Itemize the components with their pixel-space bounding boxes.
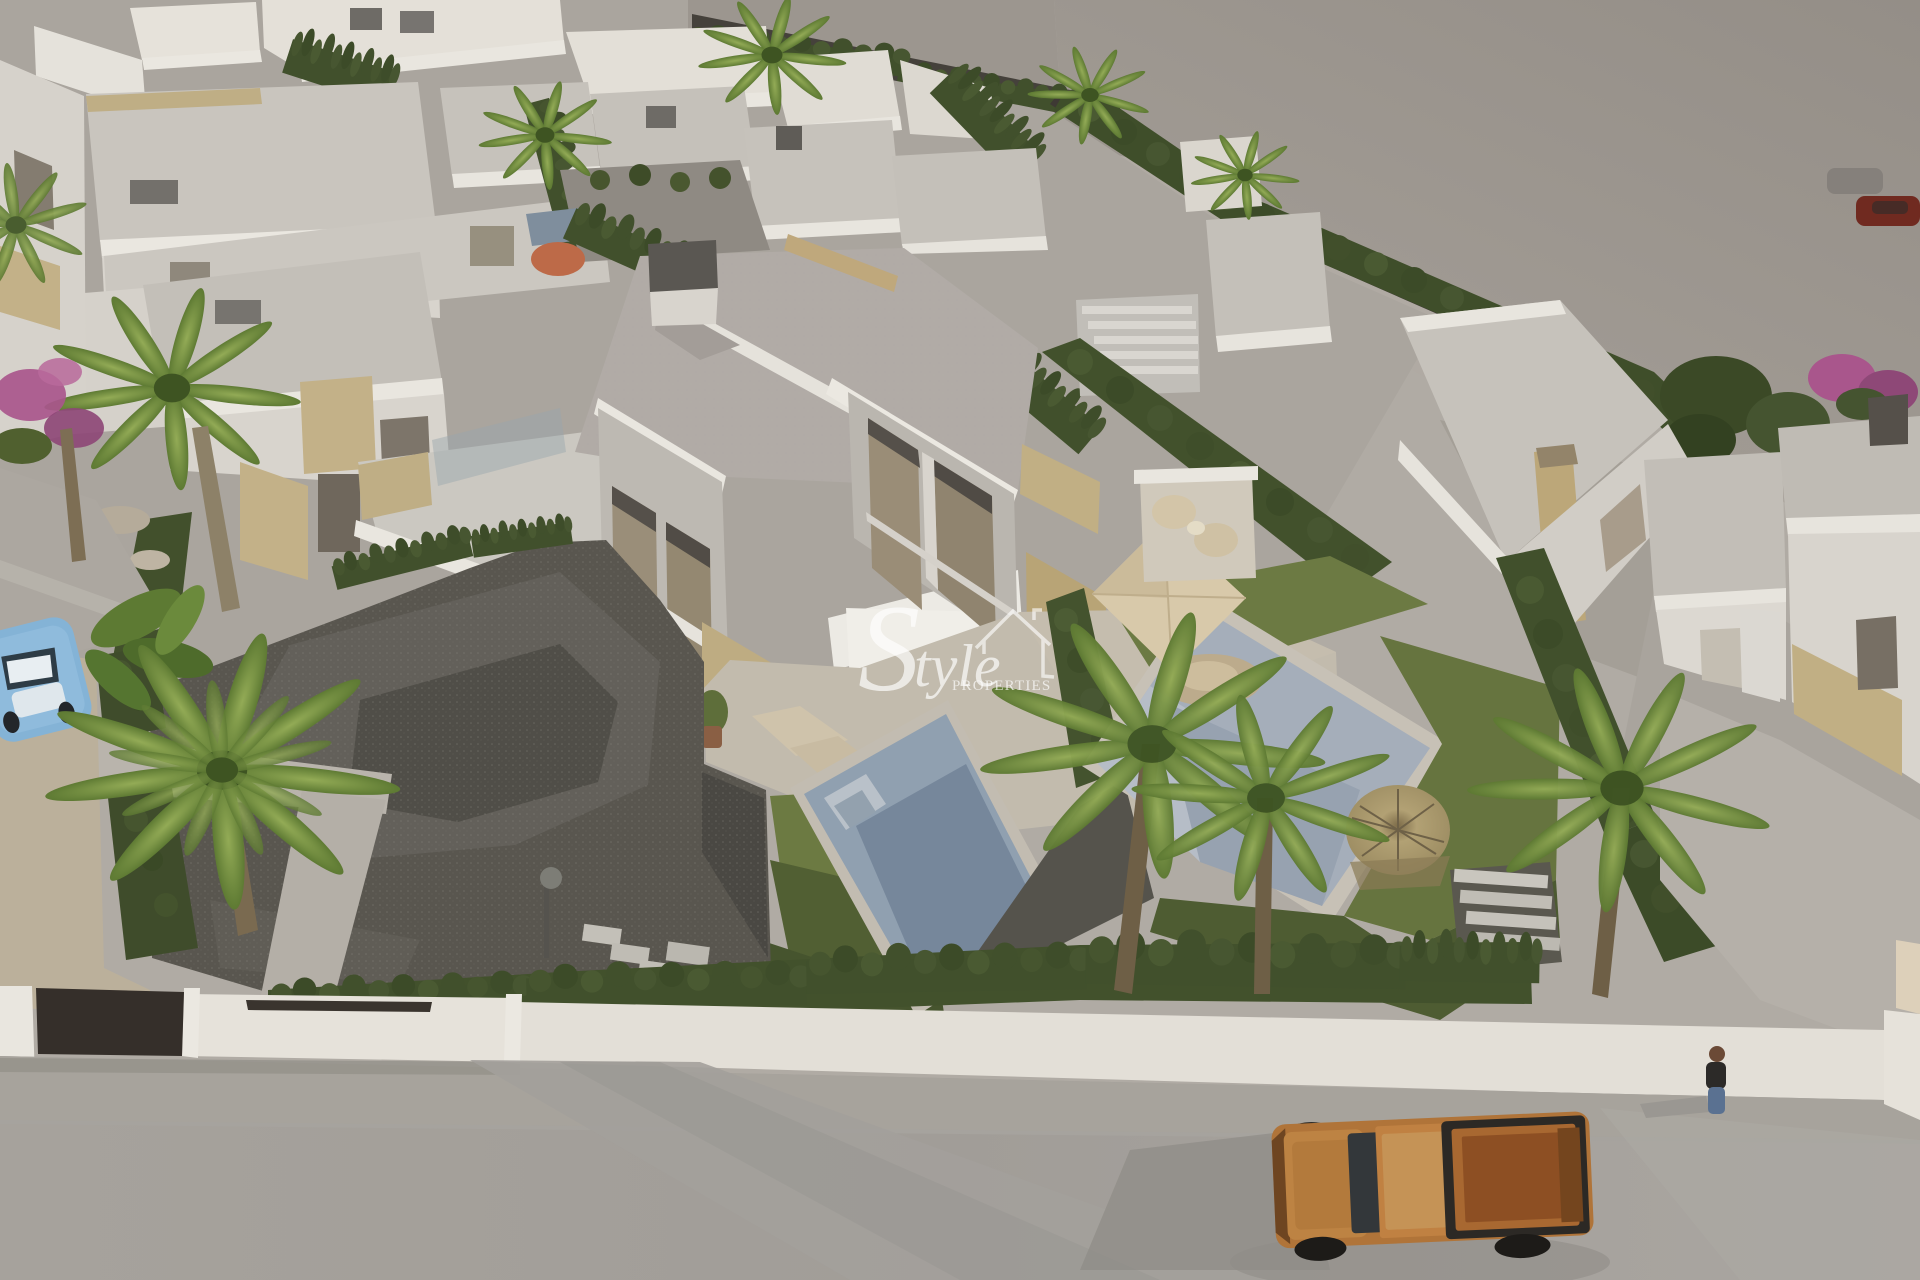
svg-text:PROPERTIES: PROPERTIES [952,678,1051,694]
svg-text:S: S [858,580,920,717]
